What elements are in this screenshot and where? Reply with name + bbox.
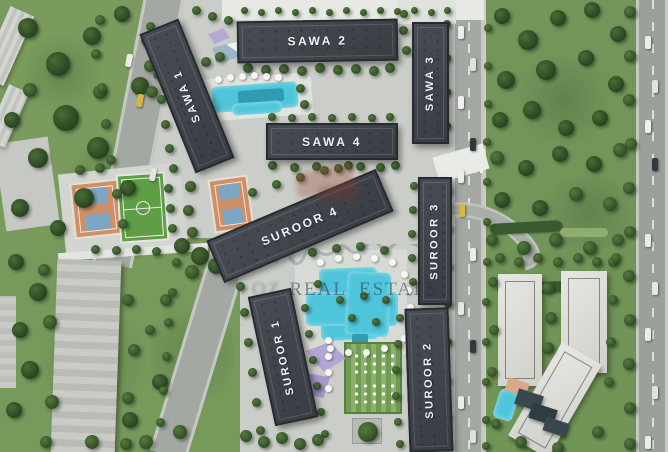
car bbox=[645, 120, 651, 133]
car bbox=[645, 36, 651, 49]
car bbox=[470, 138, 476, 151]
car bbox=[470, 340, 476, 353]
masterplan-render: SAWA 1 SAWA 2 SAWA 3 SAWA 4 SUROOR 4 SUR… bbox=[0, 0, 668, 452]
car bbox=[149, 168, 157, 182]
building-label-sawa-1: SAWA 1 bbox=[171, 68, 203, 125]
car bbox=[458, 396, 464, 409]
car bbox=[470, 58, 476, 71]
car bbox=[652, 282, 658, 295]
building-sawa-3: SAWA 3 bbox=[412, 22, 449, 144]
building-label-sawa-3: SAWA 3 bbox=[425, 55, 437, 111]
car bbox=[470, 248, 476, 261]
building-label-suroor-2: SUROOR 2 bbox=[422, 341, 437, 419]
car bbox=[458, 96, 464, 109]
building-label-sawa-4: SAWA 4 bbox=[302, 135, 362, 149]
logo-watermark bbox=[318, 186, 360, 202]
car bbox=[458, 302, 464, 315]
building-label-sawa-2: SAWA 2 bbox=[287, 33, 347, 48]
watermark-text: OZREAL ESTATE bbox=[252, 279, 438, 301]
car bbox=[459, 204, 465, 217]
building-sawa-4: SAWA 4 bbox=[266, 123, 398, 160]
building-sawa-2: SAWA 2 bbox=[237, 19, 399, 64]
car bbox=[136, 94, 144, 108]
watermark-main: REAL ESTATE bbox=[289, 279, 438, 300]
car bbox=[458, 26, 464, 39]
car bbox=[652, 386, 658, 399]
car bbox=[652, 158, 658, 171]
car bbox=[470, 430, 476, 443]
car bbox=[645, 234, 651, 247]
building-suroor-2: SUROOR 2 bbox=[405, 307, 454, 452]
car bbox=[645, 436, 651, 449]
script-watermark bbox=[272, 244, 442, 270]
car bbox=[645, 328, 651, 341]
car bbox=[652, 80, 658, 93]
building-label-suroor-1: SUROOR 1 bbox=[269, 318, 297, 396]
watermark-prefix: OZ bbox=[252, 279, 281, 300]
car bbox=[125, 54, 133, 68]
car bbox=[458, 170, 464, 183]
